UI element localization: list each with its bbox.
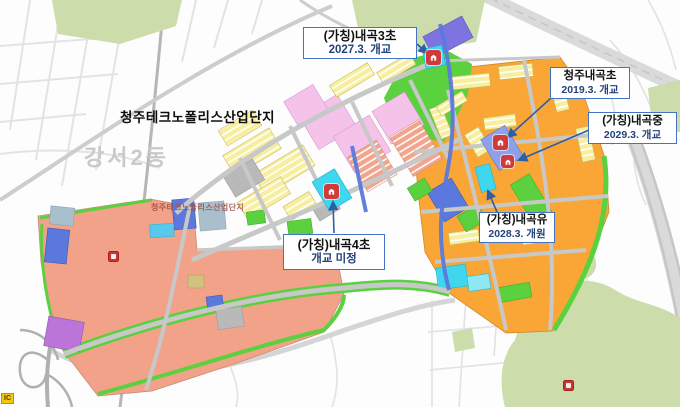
poi-marker-icon [563, 380, 574, 391]
school-schedule: 2027.3. 개교 [329, 44, 392, 58]
school-schedule: 2028.3. 개원 [488, 228, 545, 241]
school-schedule: 2029.3. 개교 [604, 129, 661, 142]
complex-inline-label: 청주테크노폴리스산업단지 [151, 202, 244, 213]
school-name: (가칭)내곡4초 [298, 238, 371, 253]
school-name: (가칭)내곡중 [602, 115, 663, 129]
district-label: 강서2동 [84, 140, 169, 172]
callout-cheongju-naegok-elementary: 청주내곡초 2019.3. 개교 [550, 67, 630, 99]
complex-title-label: 청주테크노폴리스산업단지 [120, 106, 275, 126]
school-name: 청주내곡초 [564, 70, 617, 84]
callout-naegok4-elementary: (가칭)내곡4초 개교 미정 [283, 234, 385, 270]
school-marker-icon [493, 135, 508, 150]
land-use-map: 청주테크노폴리스산업단지 강서2동 청주테크노폴리스산업단지 IC (가칭)내곡… [0, 0, 680, 407]
school-marker-icon [426, 50, 441, 65]
school-schedule: 2019.3. 개교 [561, 84, 618, 97]
callout-naegok-kindergarten: (가칭)내곡유 2028.3. 개원 [479, 212, 555, 243]
school-name: (가칭)내곡유 [487, 214, 548, 228]
callout-naegok3-elementary: (가칭)내곡3초 2027.3. 개교 [303, 27, 417, 59]
callout-naegok-middle: (가칭)내곡중 2029.3. 개교 [588, 112, 677, 144]
school-marker-icon [324, 184, 339, 199]
base-map-art [0, 0, 680, 407]
school-marker-icon [501, 155, 514, 168]
interchange-badge: IC [1, 393, 14, 404]
school-schedule: 개교 미정 [311, 253, 357, 267]
poi-marker-icon [108, 251, 119, 262]
school-name: (가칭)내곡3초 [324, 29, 397, 44]
